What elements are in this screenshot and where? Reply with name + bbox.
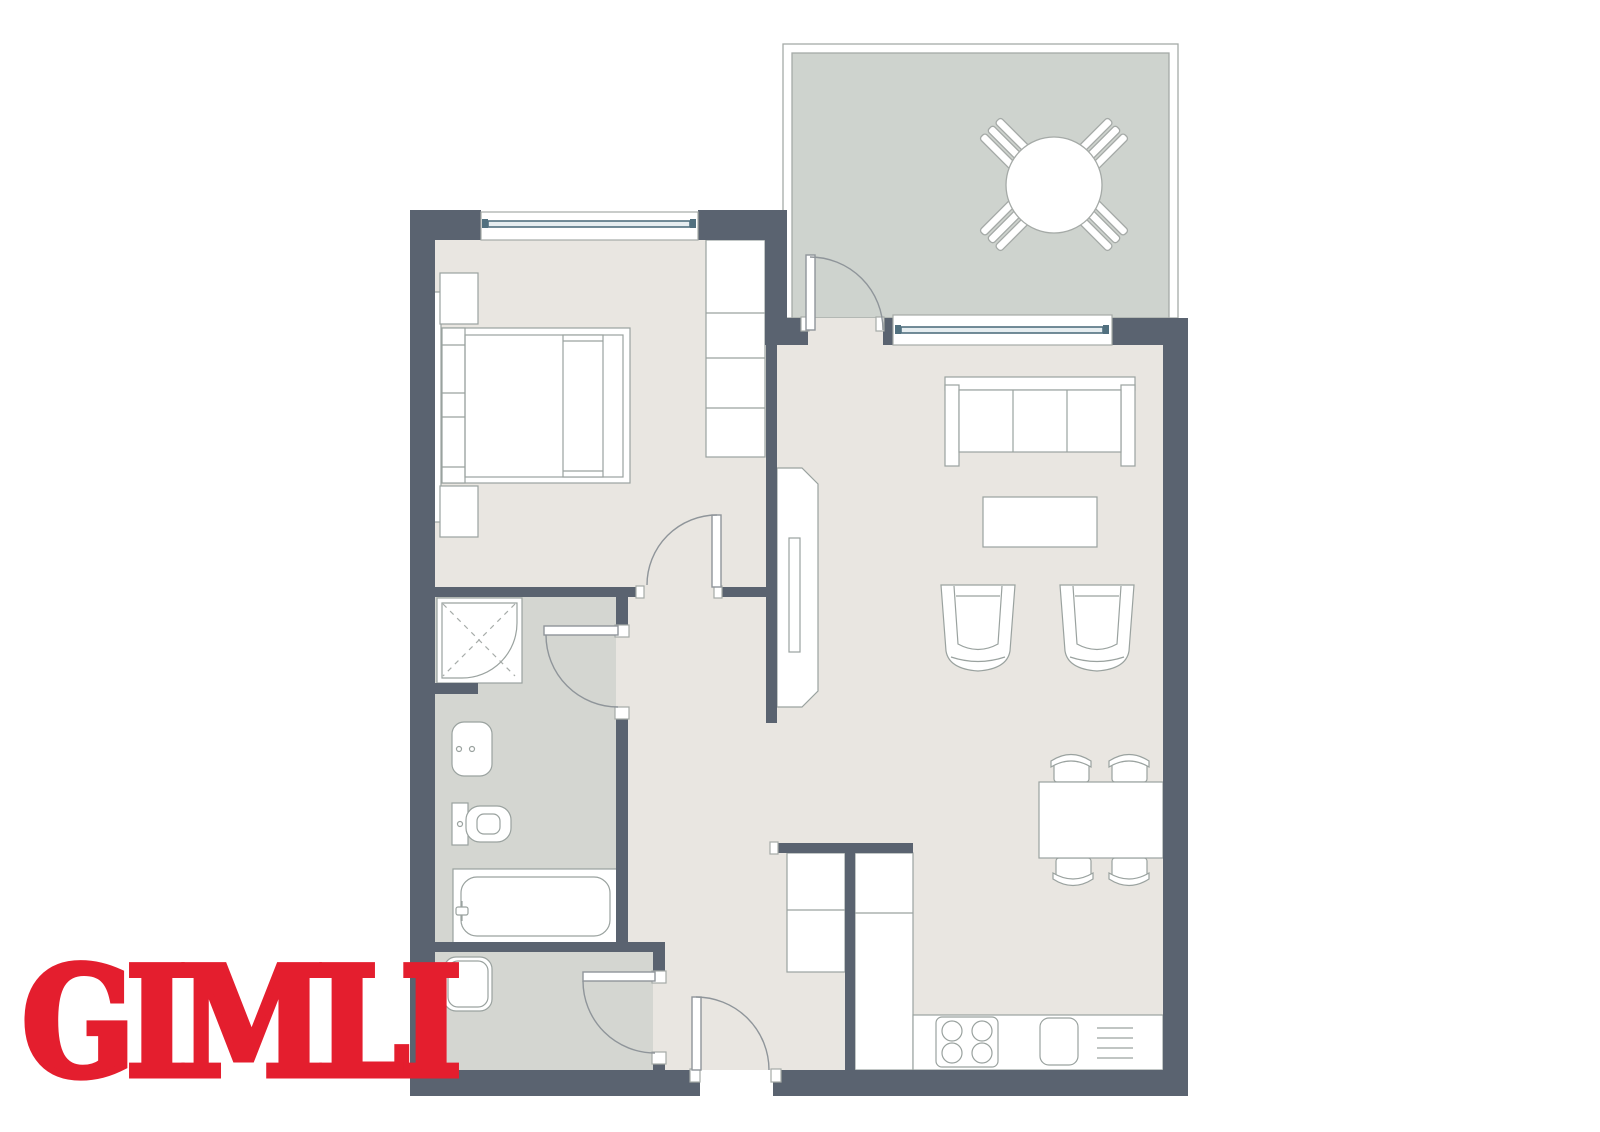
kitchen-sink bbox=[1040, 1018, 1078, 1065]
wall-end-cap-kitchen bbox=[770, 842, 778, 854]
balcony-floor bbox=[792, 53, 1169, 318]
jamb-entry-right bbox=[771, 1069, 781, 1082]
jamb-bedroom-left bbox=[636, 586, 644, 598]
wall-bedroom-top-left bbox=[410, 210, 481, 240]
tv-unit bbox=[777, 468, 818, 707]
bedroom-window-glazing bbox=[488, 221, 690, 227]
wall-living-left bbox=[766, 345, 777, 723]
wardrobe bbox=[706, 240, 765, 457]
wall-bedroom-hall-left bbox=[435, 587, 643, 597]
toilet bbox=[452, 803, 511, 845]
kitchen-counter-column bbox=[855, 853, 913, 1070]
wall-shower-stub bbox=[435, 683, 478, 694]
dining-chair-bottom-1 bbox=[1053, 858, 1093, 886]
wall-bottom-right bbox=[773, 1070, 1188, 1096]
tv-screen bbox=[789, 538, 800, 652]
sofa-armrest-left bbox=[945, 385, 959, 466]
jamb-bathroom-bottom bbox=[615, 707, 629, 719]
living-window bbox=[893, 315, 1112, 345]
balcony-round-table bbox=[1006, 137, 1102, 233]
wall-kitchen-horizontal bbox=[771, 843, 913, 853]
sofa-seat bbox=[959, 390, 1121, 452]
wall-bedroom-living bbox=[765, 210, 787, 345]
dining-table bbox=[1039, 782, 1163, 858]
sofa-armrest-right bbox=[1121, 385, 1135, 466]
shower bbox=[437, 598, 522, 683]
balcony bbox=[783, 44, 1178, 318]
wall-bedroom-top-right bbox=[698, 210, 765, 240]
cooktop bbox=[936, 1017, 998, 1067]
nightstand-top bbox=[440, 273, 478, 324]
gimli-logo: GIMLI bbox=[22, 948, 453, 1098]
jamb-entry-left bbox=[690, 1069, 700, 1082]
bed-duvet bbox=[563, 335, 603, 477]
armchair-right bbox=[1060, 585, 1134, 671]
wall-right bbox=[1163, 318, 1188, 1096]
coffee-table bbox=[983, 497, 1097, 547]
wall-bottom-left bbox=[410, 1070, 700, 1096]
bathtub bbox=[453, 869, 618, 944]
wall-bathroom-right-lower bbox=[616, 707, 628, 952]
wall-kitchen-vertical bbox=[845, 853, 855, 1070]
bedroom-window bbox=[481, 212, 698, 240]
bathroom-washbasin bbox=[452, 722, 492, 776]
dining-chair-top-2 bbox=[1109, 755, 1149, 783]
nightstand-bottom bbox=[440, 486, 478, 537]
living-window-glazing bbox=[901, 327, 1103, 333]
dining-chair-bottom-2 bbox=[1109, 858, 1149, 886]
sofa-back bbox=[945, 377, 1135, 390]
armchair-left bbox=[941, 585, 1015, 671]
dining-chair-top-1 bbox=[1051, 755, 1091, 783]
floor-plan-canvas: GIMLI bbox=[0, 0, 1600, 1132]
jamb-utility-bottom bbox=[652, 1052, 666, 1064]
wall-utility-top bbox=[435, 942, 665, 952]
jamb-bedroom-right bbox=[714, 586, 722, 598]
bed-headboard bbox=[442, 328, 465, 483]
entry-cabinet bbox=[787, 853, 845, 972]
wall-bedroom-hall-right bbox=[715, 587, 766, 597]
